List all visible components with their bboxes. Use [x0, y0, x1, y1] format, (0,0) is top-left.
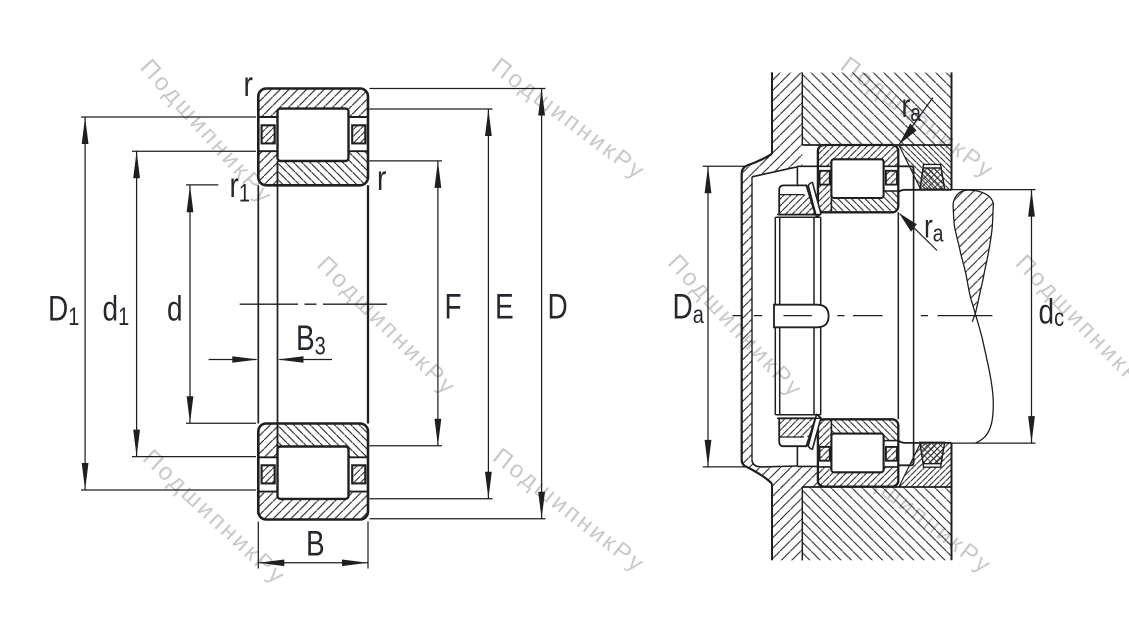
svg-text:d: d: [167, 289, 183, 329]
svg-text:r: r: [377, 158, 387, 198]
svg-text:r: r: [244, 64, 254, 104]
svg-text:D: D: [548, 286, 568, 326]
svg-text:E: E: [495, 286, 514, 326]
svg-text:F: F: [445, 286, 462, 326]
svg-text:B: B: [306, 523, 325, 563]
